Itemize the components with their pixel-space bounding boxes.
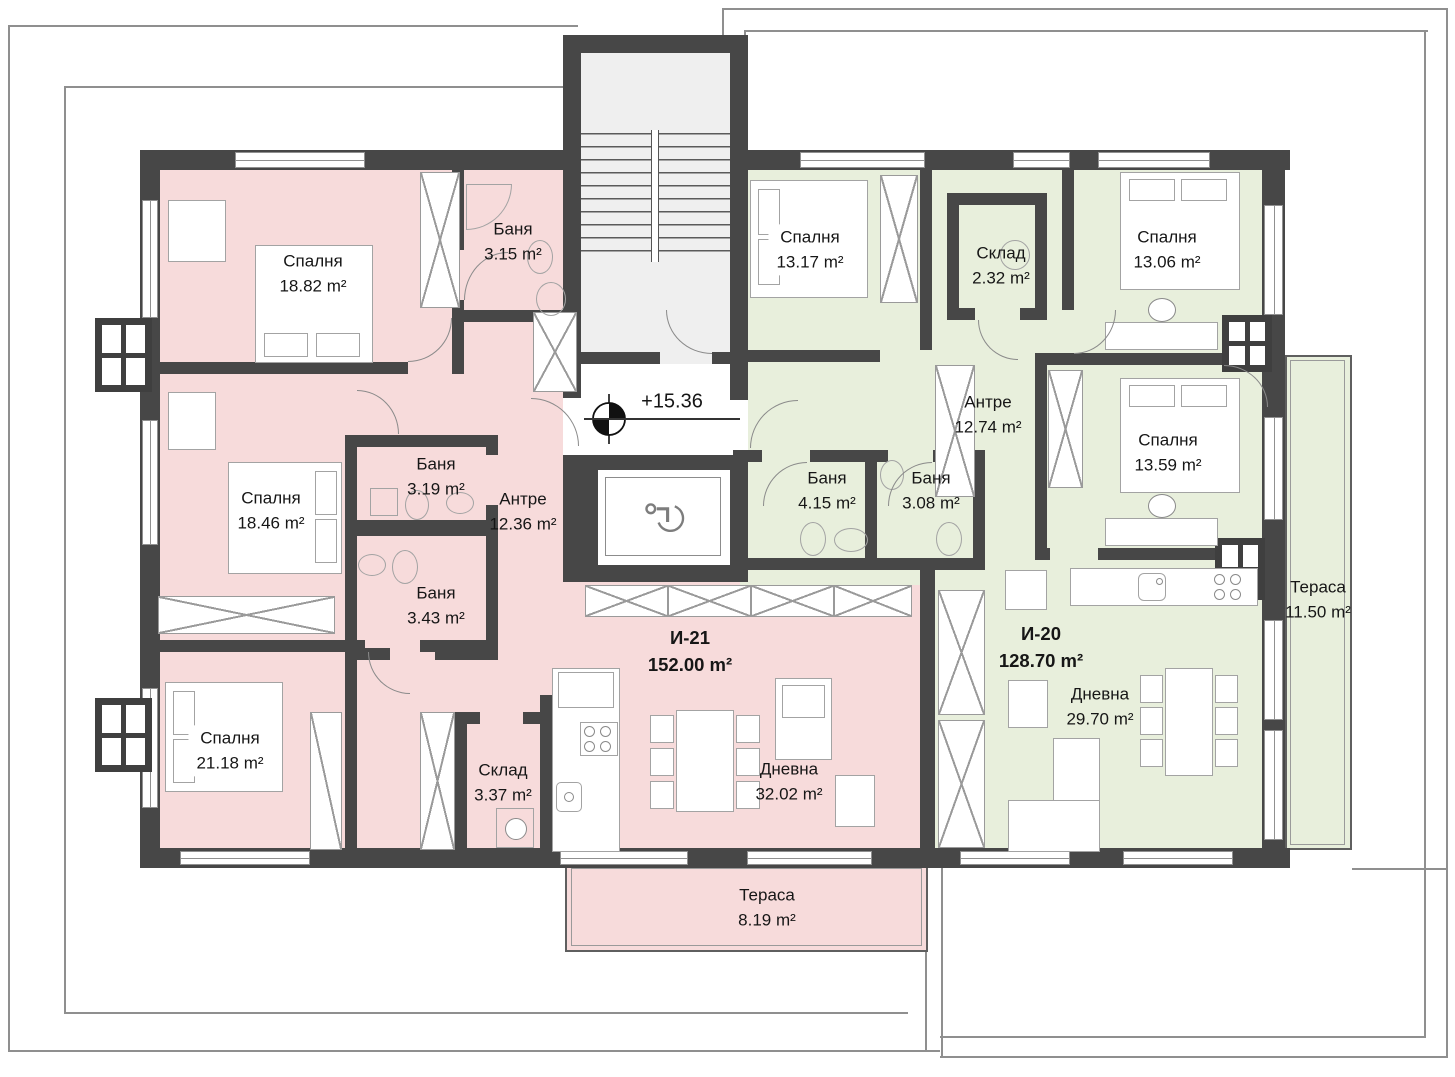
room-area: 11.50 m² bbox=[1285, 600, 1351, 625]
wardrobe-closet bbox=[751, 585, 834, 617]
wall bbox=[733, 558, 985, 570]
wall bbox=[563, 35, 748, 53]
window bbox=[1123, 851, 1233, 865]
wardrobe-closet bbox=[938, 720, 985, 848]
boundary-line bbox=[8, 25, 10, 1052]
boundary-line bbox=[64, 86, 66, 1014]
pillow bbox=[264, 333, 308, 357]
room-label: Тераса 8.19 m² bbox=[738, 883, 796, 932]
stove-hob bbox=[1212, 572, 1248, 602]
room-area: 18.82 m² bbox=[279, 274, 346, 299]
room-name: Тераса bbox=[738, 883, 796, 908]
boundary-line bbox=[722, 8, 1448, 10]
chair bbox=[1140, 739, 1163, 767]
room-area: 13.59 m² bbox=[1134, 453, 1201, 478]
boundary-line bbox=[1352, 868, 1448, 870]
wardrobe-closet bbox=[533, 312, 577, 392]
pillow bbox=[1181, 179, 1227, 201]
armchair bbox=[835, 775, 875, 827]
shaft-cell bbox=[126, 358, 145, 386]
boundary-line bbox=[1424, 30, 1426, 1038]
room-name: Баня bbox=[902, 466, 960, 491]
shaft-cell bbox=[1250, 346, 1266, 365]
pillow bbox=[316, 333, 360, 357]
sink bbox=[1138, 573, 1166, 601]
room-name: Баня bbox=[407, 452, 465, 477]
wardrobe-closet bbox=[938, 590, 985, 715]
chair bbox=[650, 748, 674, 776]
room-area: 3.43 m² bbox=[407, 606, 465, 631]
apartment-label: И-20 128.70 m² bbox=[999, 621, 1083, 675]
boundary-line bbox=[64, 86, 578, 88]
window bbox=[1013, 152, 1070, 168]
chair bbox=[650, 781, 674, 809]
wall bbox=[455, 712, 480, 724]
sink bbox=[556, 782, 582, 812]
pillow bbox=[1181, 385, 1227, 407]
wall bbox=[1035, 193, 1047, 320]
toilet bbox=[392, 550, 418, 584]
room-label: Спалня 18.46 m² bbox=[229, 485, 312, 536]
wall bbox=[455, 712, 467, 848]
elevation-label: +15.36 bbox=[641, 388, 703, 417]
wall bbox=[712, 352, 748, 364]
shaft-cell bbox=[1250, 322, 1266, 341]
shaft-cell bbox=[102, 705, 121, 733]
ventilation-shaft bbox=[1222, 315, 1272, 372]
burner bbox=[600, 726, 611, 737]
wall bbox=[1062, 170, 1074, 310]
room-name: Тераса bbox=[1285, 575, 1351, 600]
boundary-line bbox=[940, 1056, 1448, 1058]
wall bbox=[486, 435, 498, 455]
room-label: Спалня 18.82 m² bbox=[271, 248, 354, 299]
shaft-cell bbox=[1222, 545, 1238, 567]
wall bbox=[1035, 353, 1225, 365]
wardrobe-closet bbox=[668, 585, 751, 617]
room-name: Баня bbox=[484, 217, 542, 242]
shaft-cell bbox=[102, 358, 121, 386]
elevation-underline bbox=[584, 418, 740, 420]
chair bbox=[1140, 675, 1163, 703]
chair bbox=[1215, 675, 1238, 703]
wall bbox=[1020, 308, 1047, 320]
apartment-area: 152.00 m² bbox=[648, 652, 732, 679]
wall bbox=[865, 450, 877, 570]
wheelchair-icon bbox=[640, 492, 688, 540]
chair bbox=[736, 715, 760, 743]
wall bbox=[345, 520, 498, 536]
wall bbox=[345, 435, 357, 648]
chair bbox=[1148, 298, 1176, 322]
sink-drain bbox=[564, 792, 574, 802]
wardrobe-closet bbox=[834, 585, 912, 617]
wall bbox=[947, 193, 1047, 205]
shaft-cell bbox=[102, 738, 121, 766]
elevation-value: +15.36 bbox=[641, 391, 703, 413]
room-label: Тераса 11.50 m² bbox=[1285, 575, 1351, 624]
room-name: Спалня bbox=[1133, 225, 1200, 250]
shaft-cell bbox=[102, 325, 121, 353]
room-label: Баня 3.08 m² bbox=[902, 466, 960, 515]
armchair bbox=[1008, 680, 1048, 728]
pillow bbox=[1129, 385, 1175, 407]
wardrobe-closet bbox=[420, 712, 455, 850]
chair bbox=[650, 715, 674, 743]
wall bbox=[1035, 548, 1050, 560]
room-label: Спалня 13.17 m² bbox=[768, 224, 851, 275]
wall bbox=[733, 450, 745, 570]
stove-hob bbox=[580, 722, 618, 756]
desk bbox=[1105, 518, 1218, 546]
room-name: Спалня bbox=[279, 249, 346, 274]
window bbox=[1264, 730, 1283, 840]
boundary-line bbox=[940, 1036, 1426, 1038]
burner bbox=[1214, 589, 1225, 600]
window bbox=[1264, 620, 1283, 720]
wall bbox=[140, 848, 1290, 868]
chair bbox=[1215, 707, 1238, 735]
side-table bbox=[1005, 570, 1047, 610]
wardrobe-closet bbox=[585, 585, 668, 617]
burner bbox=[584, 726, 595, 737]
refrigerator bbox=[558, 672, 614, 708]
room-label: Дневна 32.02 m² bbox=[755, 757, 822, 806]
room-label: Спалня 13.59 m² bbox=[1126, 427, 1209, 478]
wardrobe-closet bbox=[310, 712, 342, 850]
room-label: Склад 2.32 m² bbox=[972, 241, 1030, 290]
wall bbox=[140, 362, 408, 374]
room-name: Спалня bbox=[196, 726, 263, 751]
wall bbox=[452, 300, 464, 374]
shaft-cell bbox=[126, 705, 145, 733]
stair-divider bbox=[651, 130, 659, 262]
room-label: Антре 12.36 m² bbox=[489, 487, 556, 536]
window bbox=[1098, 152, 1210, 168]
window bbox=[235, 152, 365, 168]
desk bbox=[168, 392, 216, 450]
shaft-cell bbox=[1229, 322, 1245, 341]
wall bbox=[345, 435, 498, 447]
wall bbox=[947, 193, 959, 320]
apartment-id: И-21 bbox=[648, 625, 732, 652]
room-area: 21.18 m² bbox=[196, 751, 263, 776]
room-label: Склад 3.37 m² bbox=[474, 758, 532, 807]
boundary-line bbox=[744, 30, 1428, 32]
wall bbox=[540, 695, 552, 848]
room-label: Спалня 13.06 m² bbox=[1125, 224, 1208, 275]
desk bbox=[168, 200, 226, 262]
window bbox=[142, 420, 158, 545]
ventilation-shaft bbox=[95, 318, 152, 392]
room-label: Баня 3.43 m² bbox=[407, 581, 465, 630]
sink bbox=[834, 528, 868, 552]
room-label: Антре 12.74 m² bbox=[954, 390, 1021, 439]
room-name: Баня bbox=[407, 581, 465, 606]
wall bbox=[1035, 365, 1047, 548]
room-name: Склад bbox=[972, 241, 1030, 266]
room-area: 3.15 m² bbox=[484, 242, 542, 267]
desk bbox=[1105, 322, 1218, 350]
window bbox=[800, 152, 925, 168]
washer-drum bbox=[505, 818, 527, 840]
wall bbox=[733, 350, 880, 362]
wall bbox=[947, 308, 975, 320]
room-label: Баня 4.15 m² bbox=[798, 466, 856, 515]
room-area: 13.06 m² bbox=[1133, 250, 1200, 275]
room-name: Антре bbox=[489, 487, 556, 512]
apartment-label: И-21 152.00 m² bbox=[648, 625, 732, 679]
wall bbox=[730, 35, 748, 364]
room-area: 29.70 m² bbox=[1066, 707, 1133, 732]
burner bbox=[1230, 574, 1241, 585]
wall bbox=[920, 170, 932, 350]
room-area: 3.08 m² bbox=[902, 491, 960, 516]
toilet bbox=[800, 522, 826, 556]
room-area: 3.37 m² bbox=[474, 783, 532, 808]
sink-drain bbox=[1156, 578, 1163, 585]
room-area: 12.36 m² bbox=[489, 512, 556, 537]
room-name: Баня bbox=[798, 466, 856, 491]
sink bbox=[358, 554, 386, 576]
room-area: 8.19 m² bbox=[738, 908, 796, 933]
pillow bbox=[315, 471, 337, 515]
window bbox=[1264, 205, 1283, 315]
chair bbox=[1148, 494, 1176, 518]
window bbox=[560, 851, 688, 865]
wall bbox=[563, 352, 660, 364]
room-name: Склад bbox=[474, 758, 532, 783]
window bbox=[180, 851, 310, 865]
boundary-line bbox=[64, 1012, 908, 1014]
wall bbox=[920, 570, 935, 848]
burner bbox=[584, 741, 595, 752]
boundary-line bbox=[8, 25, 578, 27]
room-area: 3.19 m² bbox=[407, 477, 465, 502]
room-label: Спалня 21.18 m² bbox=[188, 725, 271, 776]
room-area: 12.74 m² bbox=[954, 415, 1021, 440]
room-area: 13.17 m² bbox=[776, 250, 843, 275]
pillow bbox=[315, 519, 337, 563]
boundary-line bbox=[8, 1050, 940, 1052]
sofa-cushion bbox=[782, 685, 825, 718]
room-name: Спалня bbox=[1134, 428, 1201, 453]
wardrobe-closet bbox=[1048, 370, 1083, 488]
chair bbox=[1215, 739, 1238, 767]
room-area: 2.32 m² bbox=[972, 266, 1030, 291]
boundary-line bbox=[941, 868, 943, 1058]
wall bbox=[345, 652, 357, 848]
sofa bbox=[1008, 800, 1100, 852]
shaft-cell bbox=[1229, 346, 1245, 365]
room-area: 4.15 m² bbox=[798, 491, 856, 516]
washing-machine bbox=[496, 808, 534, 848]
room-name: Спалня bbox=[237, 486, 304, 511]
window bbox=[960, 851, 1070, 865]
chair bbox=[1140, 707, 1163, 735]
window bbox=[142, 200, 158, 318]
washing-machine bbox=[370, 488, 398, 516]
wardrobe-closet bbox=[880, 175, 918, 303]
shaft-cell bbox=[126, 738, 145, 766]
wall bbox=[420, 640, 498, 652]
shaft-cell bbox=[126, 325, 145, 353]
room-name: Антре bbox=[954, 390, 1021, 415]
window bbox=[1264, 417, 1283, 520]
boundary-line bbox=[1446, 8, 1448, 1058]
burner bbox=[1230, 589, 1241, 600]
dining-table bbox=[676, 710, 734, 812]
pillow bbox=[1129, 179, 1175, 201]
shaft-cell bbox=[1243, 545, 1259, 567]
sofa bbox=[775, 678, 832, 760]
room-name: Дневна bbox=[755, 757, 822, 782]
room-area: 32.02 m² bbox=[755, 782, 822, 807]
apartment-area: 128.70 m² bbox=[999, 648, 1083, 675]
wardrobe-closet bbox=[420, 172, 460, 308]
floor-plan: +15.36 Спалня 18.82 m² Баня 3.15 m² Спал… bbox=[0, 0, 1455, 1077]
burner bbox=[600, 741, 611, 752]
toilet bbox=[936, 522, 962, 556]
dining-table bbox=[1165, 668, 1213, 776]
apartment-id: И-20 bbox=[999, 621, 1083, 648]
room-name: Дневна bbox=[1066, 682, 1133, 707]
window bbox=[747, 851, 872, 865]
room-label: Дневна 29.70 m² bbox=[1066, 682, 1133, 731]
burner bbox=[1214, 574, 1225, 585]
wall bbox=[730, 364, 748, 400]
room-label: Баня 3.19 m² bbox=[407, 452, 465, 501]
room-area: 18.46 m² bbox=[237, 511, 304, 536]
ventilation-shaft bbox=[95, 698, 152, 772]
wall bbox=[140, 640, 365, 652]
room-name: Спалня bbox=[776, 225, 843, 250]
sink bbox=[536, 282, 566, 316]
wardrobe-closet bbox=[158, 596, 335, 634]
room-label: Баня 3.15 m² bbox=[484, 217, 542, 266]
